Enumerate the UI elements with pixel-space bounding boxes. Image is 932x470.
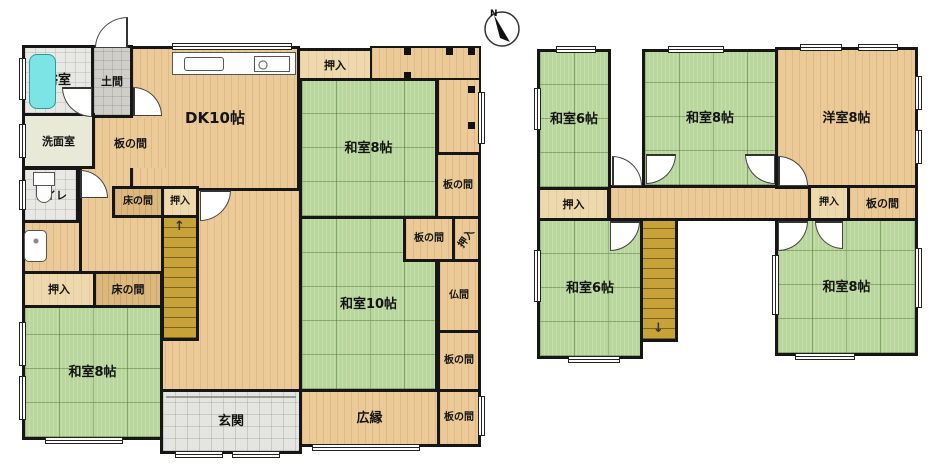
room-label: 玄関 xyxy=(218,415,244,428)
pillar xyxy=(468,122,475,129)
window xyxy=(668,46,724,53)
window xyxy=(175,451,223,458)
room-label: 板の間 xyxy=(414,234,444,244)
room-label: 板の間 xyxy=(444,413,474,423)
room-label: 床の間 xyxy=(123,197,153,207)
stairs-down-arrow: ↓ xyxy=(653,322,664,335)
room2-washitsu6-nw: 和室6帖 xyxy=(537,49,611,190)
room-butsuma: 仏間 xyxy=(437,259,481,333)
window xyxy=(478,92,485,144)
room-oshiire-center: 押入 xyxy=(161,186,199,218)
floor-plan: 浴室 土間 DK10帖 押入 和室8帖 板の間 洗面室 板の間 トイレ 床の間 xyxy=(0,0,932,470)
window xyxy=(312,444,420,451)
room-senmen: 洗面室 xyxy=(22,113,95,169)
room-itanoma-ne: 板の間 xyxy=(435,152,481,219)
room-itanoma-west: 板の間 xyxy=(95,118,166,168)
window xyxy=(858,44,898,51)
room-label: 洗面室 xyxy=(42,136,75,147)
window xyxy=(478,396,485,436)
hallway-2f xyxy=(608,185,811,221)
kitchen-sink xyxy=(184,57,224,71)
room-itanoma-east: 板の間 xyxy=(437,330,481,392)
compass-icon: N xyxy=(476,4,526,52)
room-washitsu8-sw: 和室8帖 xyxy=(22,305,163,440)
room-tokonoma-center: 床の間 xyxy=(112,186,164,218)
room2-oshiire-west: 押入 xyxy=(537,187,610,221)
window xyxy=(795,353,855,360)
window xyxy=(232,451,280,458)
room-label: 床の間 xyxy=(112,284,145,295)
window xyxy=(19,124,26,158)
window xyxy=(915,130,922,164)
room-label: 板の間 xyxy=(114,138,147,149)
room-label: 土間 xyxy=(101,76,123,87)
kitchen-stove xyxy=(254,56,290,72)
window xyxy=(915,248,922,308)
hand-sink xyxy=(24,230,47,262)
room-oshiire-north: 押入 xyxy=(297,48,373,82)
window xyxy=(534,88,541,130)
room-label: 和室10帖 xyxy=(340,298,397,311)
room2-oshiire-east: 押入 xyxy=(808,185,850,221)
room-doma: 土間 xyxy=(91,45,133,118)
pillar xyxy=(404,48,411,55)
pillar xyxy=(468,86,475,93)
toilet-bowl xyxy=(33,172,55,186)
room-washitsu8-ne: 和室8帖 xyxy=(299,78,438,219)
room-label: 押入 xyxy=(324,60,346,71)
room-label: 洋室8帖 xyxy=(822,112,870,125)
room-tokonoma-sw: 床の間 xyxy=(93,271,163,308)
room-label: 板の間 xyxy=(866,198,899,209)
room-label: 押入 xyxy=(170,197,190,207)
window xyxy=(915,76,922,110)
room-label: 和室6帖 xyxy=(566,282,614,295)
bathtub xyxy=(29,54,56,109)
window xyxy=(45,437,123,444)
room-label: 押入 xyxy=(563,199,585,210)
window xyxy=(800,44,842,51)
pillar xyxy=(468,48,475,55)
room-label: 和室6帖 xyxy=(550,113,598,126)
room-genkan: 玄関 xyxy=(160,389,302,454)
room-label: 和室8帖 xyxy=(68,366,116,379)
room-label: 仏間 xyxy=(449,291,469,301)
window xyxy=(19,58,26,100)
stairs-up-arrow: ↑ xyxy=(174,220,185,233)
room-label: 押入 xyxy=(457,228,477,250)
room-label: 和室8帖 xyxy=(686,112,734,125)
window xyxy=(772,255,779,315)
room-label: 板の間 xyxy=(444,356,474,366)
room-label: 広縁 xyxy=(356,412,382,425)
veranda-north xyxy=(370,46,481,81)
window xyxy=(19,180,26,210)
room-itanoma-se: 板の間 xyxy=(437,389,481,447)
door-arc xyxy=(612,156,642,186)
room-label: DK10帖 xyxy=(185,111,245,126)
pillar xyxy=(446,48,453,55)
window xyxy=(19,322,26,366)
room-label: 板の間 xyxy=(443,181,473,191)
room2-itanoma-east: 板の間 xyxy=(847,185,918,221)
door-arc xyxy=(95,17,128,48)
room-hiroen: 広縁 xyxy=(299,389,440,447)
genkan-step xyxy=(166,396,296,398)
room-label: 和室8帖 xyxy=(344,142,392,155)
room-itanoma-mid: 板の間 xyxy=(403,216,455,262)
room-label: 押入 xyxy=(819,198,839,208)
toilet-seat xyxy=(36,185,52,203)
room-oshiire-east: 押入 xyxy=(452,216,481,262)
room-label: 和室8帖 xyxy=(822,281,870,294)
window xyxy=(534,250,541,302)
window xyxy=(568,356,620,363)
room-oshiire-sw: 押入 xyxy=(22,271,96,308)
window xyxy=(172,43,292,50)
window xyxy=(19,376,26,420)
window xyxy=(556,46,596,53)
svg-text:N: N xyxy=(490,9,498,19)
room-label: 押入 xyxy=(48,284,70,295)
